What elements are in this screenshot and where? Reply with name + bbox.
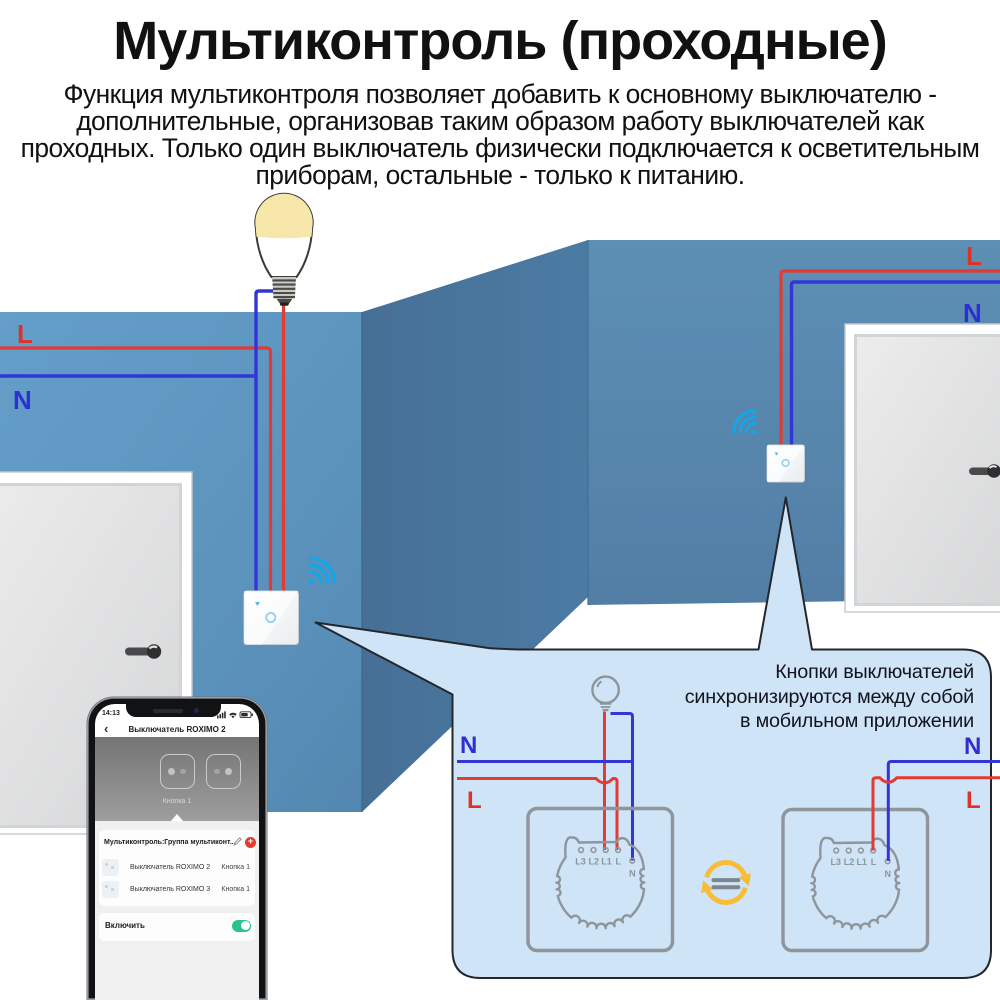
svg-text:L1: L1: [601, 857, 612, 867]
svg-text:N: N: [964, 733, 981, 760]
svg-text:N: N: [629, 869, 636, 879]
svg-text:N: N: [963, 298, 982, 328]
svg-text:L3: L3: [830, 857, 841, 867]
svg-text:L3: L3: [575, 857, 586, 867]
svg-text:L2: L2: [589, 857, 600, 867]
svg-text:N: N: [885, 869, 892, 879]
svg-text:L: L: [616, 857, 622, 867]
svg-text:L2: L2: [844, 857, 855, 867]
svg-text:N: N: [460, 732, 477, 759]
svg-text:L: L: [966, 241, 982, 271]
svg-text:L: L: [871, 857, 877, 867]
svg-text:L: L: [17, 319, 33, 349]
svg-text:L1: L1: [856, 857, 867, 867]
svg-text:N: N: [13, 385, 32, 415]
svg-text:L: L: [966, 787, 981, 814]
svg-text:L: L: [467, 787, 482, 814]
